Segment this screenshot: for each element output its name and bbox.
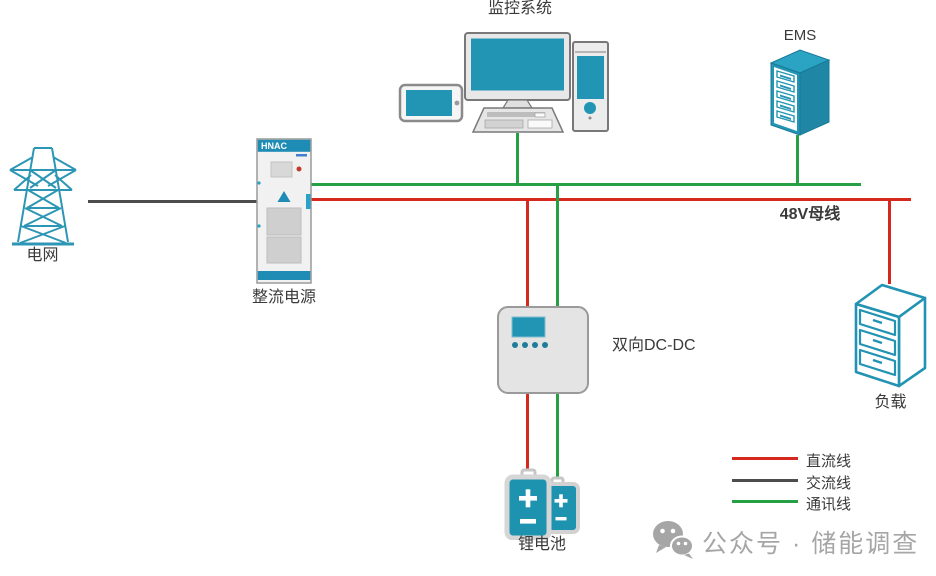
dc-line-bus-to-load bbox=[888, 201, 891, 284]
legend-ac-label: 交流线 bbox=[806, 472, 851, 493]
battery-icon bbox=[503, 468, 581, 540]
dcdc-converter-icon bbox=[496, 305, 590, 395]
ac-line-grid-to-rectifier bbox=[88, 200, 258, 203]
system-diagram: 电网 HNAC 整流电源 bbox=[0, 0, 936, 576]
legend-comm-swatch bbox=[732, 500, 798, 503]
comm-drop-ems bbox=[796, 135, 799, 185]
watermark-text: 公众号 · 储能调查 bbox=[702, 524, 919, 560]
legend-ac-swatch bbox=[732, 479, 798, 482]
rectifier-label: 整流电源 bbox=[238, 289, 330, 307]
dc-bus-line bbox=[310, 198, 911, 201]
load-label: 负载 bbox=[848, 394, 933, 412]
comm-line-bus-to-dcdc bbox=[556, 186, 559, 306]
comm-bus-line bbox=[310, 183, 861, 186]
monitoring-system-icon bbox=[395, 28, 615, 135]
dcdc-label: 双向DC-DC bbox=[612, 337, 722, 355]
ems-label: EMS bbox=[766, 27, 834, 44]
grid-label: 电网 bbox=[5, 247, 80, 265]
monitoring-label: 监控系统 bbox=[450, 0, 590, 18]
wechat-icon bbox=[652, 519, 694, 559]
comm-drop-monitoring bbox=[516, 133, 519, 185]
dc-line-dcdc-to-battery bbox=[526, 394, 529, 472]
rectifier-brand-text: HNAC bbox=[261, 141, 287, 151]
bus-label: 48V母线 bbox=[770, 206, 850, 224]
legend-dc-swatch bbox=[732, 457, 798, 460]
battery-label: 锂电池 bbox=[500, 536, 584, 554]
legend-comm-label: 通讯线 bbox=[806, 493, 851, 514]
dc-line-bus-to-dcdc bbox=[526, 201, 529, 306]
legend-dc-label: 直流线 bbox=[806, 450, 851, 471]
load-icon bbox=[848, 280, 933, 390]
ems-rack-icon bbox=[768, 46, 832, 138]
rectifier-cabinet-icon: HNAC bbox=[256, 136, 312, 286]
grid-tower-icon bbox=[8, 146, 78, 248]
